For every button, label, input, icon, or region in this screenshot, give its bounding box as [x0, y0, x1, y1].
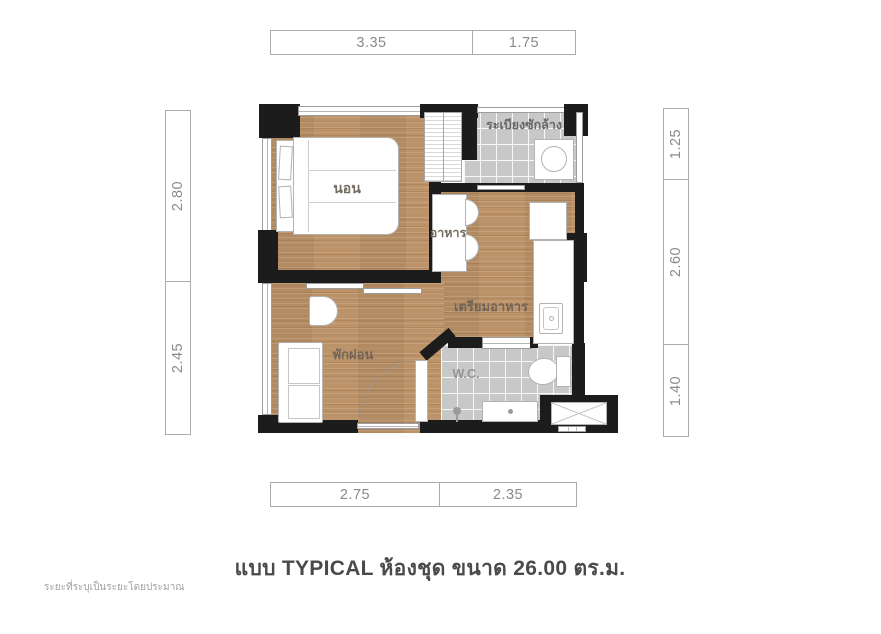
sink-drain — [549, 316, 554, 321]
dimension-right-3-text: 1.40 — [668, 375, 684, 405]
balcony-railing-top — [477, 107, 566, 113]
sofa-cushion — [288, 385, 320, 419]
pillow — [278, 186, 293, 219]
dimension-left-2: 2.45 — [166, 281, 190, 434]
toilet-tank — [556, 356, 571, 387]
bedroom-sliding-door-panel-2 — [363, 288, 422, 294]
shower-stem — [456, 414, 458, 422]
dimension-right-2: 2.60 — [664, 179, 688, 344]
dimension-left-1-text: 2.80 — [170, 181, 186, 211]
wall-right-2 — [574, 282, 584, 345]
dimension-bar-top: 3.35 1.75 — [270, 30, 576, 55]
armchair — [309, 296, 338, 326]
laundry-balcony-label: ระเบียงซักล้าง — [464, 115, 584, 135]
floor-plan-page: 3.35 1.75 2.75 2.35 2.80 2.45 1.25 2.60 … — [0, 0, 881, 634]
plan-caption: แบบ TYPICAL ห้องชุด ขนาด 26.00 ตร.ม. — [180, 552, 680, 585]
wall-bedroom-living — [258, 270, 441, 283]
kitchen-sink — [539, 303, 563, 334]
dimension-right-3: 1.40 — [664, 344, 688, 436]
pillow — [278, 146, 293, 181]
entrance-threshold — [357, 423, 419, 429]
dimension-bar-bottom: 2.75 2.35 — [270, 482, 577, 507]
dimension-right-2-text: 2.60 — [668, 247, 684, 277]
dimension-bottom-2: 2.35 — [439, 483, 576, 506]
balcony-sliding-door — [477, 185, 525, 190]
dimension-left-1: 2.80 — [166, 111, 190, 281]
bedroom-label: นอน — [307, 178, 387, 200]
kitchen-label: เตรียมอาหาร — [441, 296, 541, 317]
wc-door — [482, 337, 532, 349]
dimension-left-2-text: 2.45 — [170, 343, 186, 373]
ac-condenser-cross-icon — [552, 403, 606, 424]
bathroom-vanity — [482, 401, 538, 422]
plan-footnote: ระยะที่ระบุเป็นระยะโดยประมาณ — [44, 580, 185, 595]
bedroom-sliding-door-panel-1 — [306, 283, 364, 289]
dimension-top-1: 3.35 — [271, 31, 472, 54]
wall-right-3 — [572, 343, 585, 398]
dimension-right-1-text: 1.25 — [668, 129, 684, 159]
dimension-right-1: 1.25 — [664, 109, 688, 179]
washing-machine-drum — [541, 146, 567, 172]
bedroom-window-top — [298, 106, 422, 116]
washing-machine — [534, 139, 574, 180]
bed-blanket-line — [309, 170, 396, 171]
refrigerator — [529, 202, 567, 240]
wardrobe — [424, 112, 462, 182]
ac-niche-vent — [558, 426, 586, 432]
wall-wc-top — [448, 337, 484, 348]
entrance-door-leaf — [415, 360, 428, 422]
vanity-faucet-dot — [508, 409, 513, 414]
dining-label: อาหาร — [418, 223, 478, 243]
wall-top-left-corner — [259, 104, 300, 138]
living-label: พักผ่อน — [313, 344, 393, 365]
dimension-bar-left: 2.80 2.45 — [165, 110, 191, 435]
dimension-bottom-1: 2.75 — [271, 483, 439, 506]
dimension-top-2: 1.75 — [472, 31, 575, 54]
living-window-left — [262, 283, 272, 415]
bed-blanket-line — [309, 202, 396, 203]
bedroom-window-left — [262, 138, 272, 232]
wc-label: W.C. — [446, 367, 486, 381]
dimension-bar-right: 1.25 2.60 1.40 — [663, 108, 689, 437]
ac-condenser-unit — [551, 402, 607, 425]
